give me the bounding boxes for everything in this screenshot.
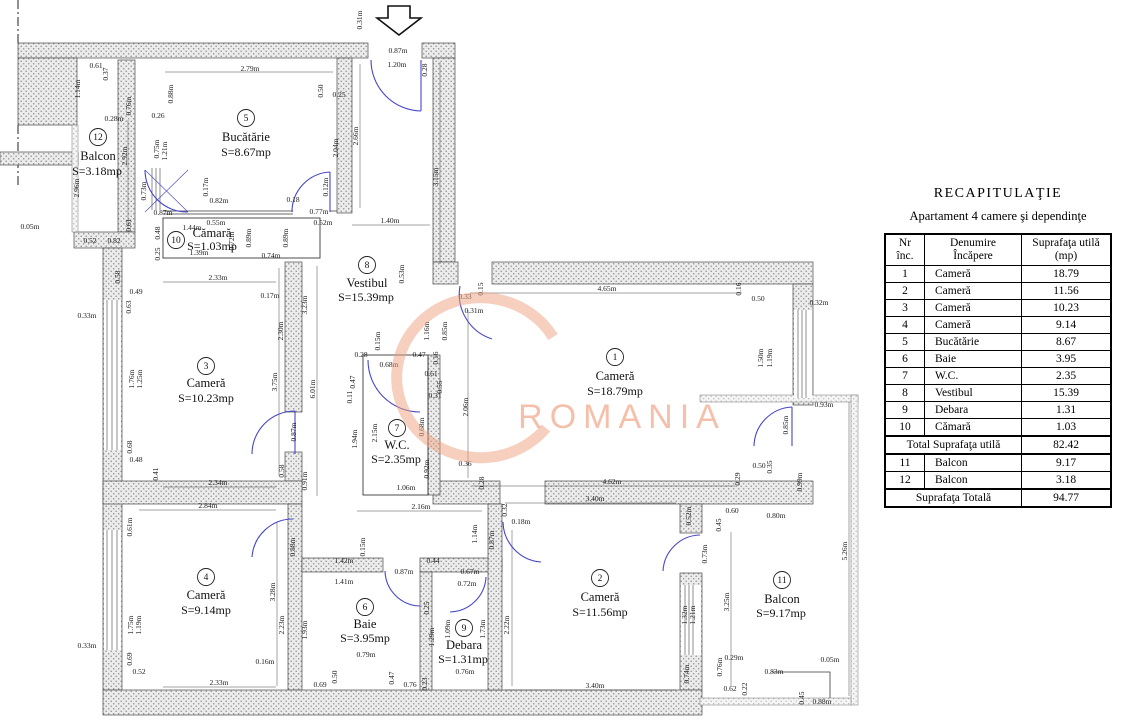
cell-room-area: 3.18: [1022, 472, 1112, 490]
dimension-label: 0.87m: [389, 46, 408, 55]
room-label-10: 10CămarăS=1.03mp: [168, 226, 237, 253]
cell-room-number: 7: [885, 368, 925, 385]
cell-room-area: 18.79: [1022, 266, 1112, 283]
dimension-label: 2.16m: [412, 502, 431, 511]
balcony-wall: [72, 125, 78, 232]
dimension-label: 0.32: [500, 503, 509, 516]
dimension-label: 1.14m: [73, 79, 82, 98]
cell-room-number: 5: [885, 334, 925, 351]
wall-segment: [422, 43, 455, 58]
table-row: 2Cameră11.56: [885, 283, 1111, 300]
dimension-label: 0.52m: [684, 506, 693, 525]
dimension-label: 0.35: [765, 460, 774, 473]
table-row: 8Vestibul15.39: [885, 385, 1111, 402]
cell-total-value: 94.77: [1022, 489, 1112, 507]
dimension-label: 0.50: [316, 84, 325, 97]
dimension-label: 0.28m: [105, 114, 124, 123]
dimension-label: 0.76m: [456, 667, 475, 676]
wall-segment: [433, 262, 458, 284]
room-number: 7: [395, 424, 400, 434]
dimension-label: 2.06m: [461, 397, 470, 416]
table-row: 5Bucătărie8.67: [885, 334, 1111, 351]
cell-room-number: 1: [885, 266, 925, 283]
cell-room-number: 6: [885, 351, 925, 368]
dimension-label: 0.50: [751, 294, 764, 303]
dimension-label: 1.93m: [300, 620, 309, 639]
cell-room-area: 8.67: [1022, 334, 1112, 351]
room-area: S=18.79mp: [587, 384, 643, 398]
dimension-label: 0.29m: [725, 653, 744, 662]
dimension-label: 1.73m: [478, 619, 487, 638]
wall-segment: [433, 481, 500, 504]
dimension-label: 0.49: [129, 287, 142, 296]
dimension-label: 0.32m: [810, 298, 829, 307]
dimension-label: 0.82m: [210, 196, 229, 205]
dimension-label: 0.15m: [373, 331, 382, 350]
header-nr: Nrînc.: [885, 234, 925, 266]
dimension-label: 0.31m: [465, 306, 484, 315]
cell-room-name: Cameră: [925, 283, 1022, 300]
dimension-label: 6.01m: [308, 379, 317, 398]
floor-plan-drawing: 0.31m0.87m1.20m0.280.610.372.79m0.88m0.5…: [0, 0, 870, 720]
dimension-label: 0.31: [428, 391, 441, 400]
door-cross-balcony12: [145, 170, 188, 212]
cell-room-number: 10: [885, 419, 925, 437]
dimension-label: 2.66m: [351, 126, 360, 145]
room-name: Baie: [354, 617, 377, 631]
room-number: 8: [365, 261, 370, 271]
dimension-label: 0.28: [354, 350, 367, 359]
dimension-label: 0.76m: [715, 657, 724, 676]
entrance-arrow-icon: [377, 6, 421, 35]
cell-room-name: W.C.: [925, 368, 1022, 385]
dimension-label: 0.47: [412, 350, 425, 359]
room-number: 9: [462, 624, 467, 634]
room-name: Balcon: [764, 592, 800, 606]
dimension-label: 0.47: [348, 375, 357, 388]
dimension-label: 0.73m: [700, 544, 709, 563]
recap-table: Nrînc. DenumireÎncăpere Suprafaţa utilă(…: [884, 233, 1112, 508]
dimension-label: 0.88m: [288, 537, 297, 556]
dimension-label: 0.31m: [355, 10, 364, 29]
dimension-label: 3.28m: [268, 582, 277, 601]
room-label-11: 11BalconS=9.17mp: [756, 572, 806, 621]
dimension-label: 3.25m: [722, 592, 731, 611]
dimension-label: 0.48: [153, 226, 162, 239]
dimension-label: 0.18: [286, 195, 299, 204]
wall-segment: [285, 262, 302, 412]
dimension-label: 1.29m: [427, 627, 436, 646]
dimension-label: 0.25: [422, 601, 431, 614]
cell-room-name: Cameră: [925, 266, 1022, 283]
cell-room-name: Vestibul: [925, 385, 1022, 402]
room-label-3: 3CamerăS=10.23mp: [178, 358, 234, 406]
dimension-label: 0.91m: [300, 471, 309, 490]
table-row: 11Balcon9.17: [885, 454, 1111, 472]
room-name: Vestibul: [347, 276, 389, 290]
dimension-label: 0.16: [431, 351, 440, 364]
door-arc-balcony11-hall: [663, 535, 700, 571]
dimension-label: 0.73m: [139, 181, 148, 200]
room-label-8: 8VestibulS=15.39mp: [338, 257, 394, 305]
table-row: Total Suprafaţa utilă82.42: [885, 436, 1111, 454]
cell-room-name: Balcon: [925, 472, 1022, 490]
dimension-label: 0.45: [797, 691, 806, 704]
dimension-label: 0.89m: [281, 228, 290, 247]
header-area: Suprafaţa utilă(mp): [1022, 234, 1112, 266]
dimension-label: 0.62: [723, 684, 736, 693]
dimension-label: 3.40m: [586, 681, 605, 690]
cell-room-name: Balcon: [925, 454, 1022, 472]
cell-total-util-value: 82.42: [1022, 436, 1112, 454]
dimension-label: 0.76m: [124, 96, 133, 115]
dimension-label: 0.52: [132, 667, 145, 676]
dimension-label: 0.80m: [767, 511, 786, 520]
dimension-label: 0.60: [725, 506, 738, 515]
cell-room-name: Baie: [925, 351, 1022, 368]
dimension-label: 2.30m: [276, 321, 285, 340]
dimension-label: 0.69: [125, 652, 134, 665]
room-area: S=10.23mp: [178, 391, 234, 405]
dimension-label: 0.26: [151, 111, 164, 120]
room-area: S=11.56mp: [572, 605, 627, 619]
room-name: W.C.: [384, 438, 409, 452]
room-number: 12: [93, 133, 103, 143]
dimension-label: 0.48: [129, 455, 142, 464]
dimension-label: 0.28: [477, 476, 486, 489]
cell-room-area: 15.39: [1022, 385, 1112, 402]
room-area: S=3.95mp: [340, 631, 390, 645]
table-row: 6Baie3.95: [885, 351, 1111, 368]
dimension-label: 1.06m: [397, 483, 416, 492]
dimension-label: 0.89m: [244, 228, 253, 247]
dimension-label: 0.50: [752, 461, 765, 470]
cell-room-number: 12: [885, 472, 925, 490]
room-area: S=2.35mp: [371, 452, 421, 466]
dimension-label: 1.50m: [756, 348, 765, 367]
dimension-label: 0.58: [113, 270, 122, 283]
dimension-label: 2.33m: [209, 273, 228, 282]
room-label-5: 5BucătărieS=8.67mp: [221, 110, 271, 160]
dimension-label: 2.79m: [241, 64, 260, 73]
dimension-label: 1.19m: [765, 348, 774, 367]
room-area: S=8.67mp: [221, 145, 271, 159]
dimension-label: 0.28: [420, 63, 429, 76]
room-number: 3: [204, 362, 209, 372]
recap-title: RECAPITULAŢIE: [884, 186, 1112, 202]
room-area: S=9.17mp: [756, 606, 806, 620]
cell-total-util-label: Total Suprafaţa utilă: [885, 436, 1022, 454]
dimension-label: 2.92m: [120, 146, 129, 165]
dimension-label: 1.19m: [134, 615, 143, 634]
dimension-label: 0.37: [101, 67, 110, 80]
dimension-label: 3.15m: [431, 167, 440, 186]
dimension-label: 0.22: [740, 682, 749, 695]
cell-room-number: 8: [885, 385, 925, 402]
dimension-label: 0.33m: [78, 311, 97, 320]
cell-room-number: 4: [885, 317, 925, 334]
door-arc-bathroom: [385, 571, 420, 606]
cell-room-area: 11.56: [1022, 283, 1112, 300]
room-area: S=15.39mp: [338, 290, 394, 304]
balcony-wall: [851, 395, 858, 705]
dimension-label: 0.87m: [154, 208, 173, 217]
room-name: Cămară: [193, 226, 232, 240]
cell-total-label: Suprafaţa Totală: [885, 489, 1022, 507]
dimension-label: 1.41m: [335, 577, 354, 586]
watermark-text: ROMANIA: [518, 398, 726, 436]
dimension-label: 2.33m: [210, 678, 229, 687]
table-row: 3Cameră10.23: [885, 300, 1111, 317]
dimension-label: 0.63: [124, 300, 133, 313]
door-arc-room4: [252, 519, 293, 557]
dimension-label: 0.61: [124, 218, 133, 231]
cell-room-area: 9.17: [1022, 454, 1112, 472]
table-row: 1Cameră18.79: [885, 266, 1111, 283]
dimension-label: 2.15m: [370, 423, 379, 442]
dimension-label: 0.23: [420, 677, 429, 690]
dimension-label: 1.09m: [443, 619, 452, 638]
dimension-label: 0.69: [313, 680, 326, 689]
dimension-label: 0.16: [734, 282, 743, 295]
window: [104, 300, 121, 450]
dimension-label: 0.44: [426, 556, 439, 565]
wall-segment: [118, 60, 135, 232]
table-row: 10Cămară1.03: [885, 419, 1111, 437]
cell-room-name: Cămară: [925, 419, 1022, 437]
cell-room-number: 9: [885, 402, 925, 419]
dimension-label: 0.25: [332, 90, 345, 99]
dimension-label: 0.53m: [397, 264, 406, 283]
room-area: S=1.31mp: [438, 652, 488, 666]
room-number: 10: [171, 236, 181, 246]
dimension-label: 0.61: [424, 369, 437, 378]
dimension-label: 3.23m: [300, 295, 309, 314]
wall-segment: [288, 504, 302, 690]
cell-room-name: Cameră: [925, 317, 1022, 334]
dimension-label: 0.52m: [314, 218, 333, 227]
room-name: Cameră: [187, 588, 226, 602]
recap-header-row: Nrînc. DenumireÎncăpere Suprafaţa utilă(…: [885, 234, 1111, 266]
dimension-label: 0.61m: [125, 517, 134, 536]
dimension-label: 1.25m: [135, 369, 144, 388]
room-label-2: 2CamerăS=11.56mp: [572, 570, 627, 620]
dimension-label: 0.41: [151, 467, 160, 480]
dimension-label: 0.11: [345, 390, 354, 403]
window: [794, 310, 812, 398]
room-name: Bucătărie: [222, 130, 270, 144]
cell-room-name: Cameră: [925, 300, 1022, 317]
wall-segment: [103, 690, 702, 715]
room-area: S=9.14mp: [181, 603, 231, 617]
dimension-label: 3.40m: [586, 494, 605, 503]
dimension-label: 0.16m: [256, 657, 275, 666]
dimension-label: 0.33m: [78, 641, 97, 650]
room-number: 11: [777, 576, 786, 586]
dimension-label: 0.85m: [781, 415, 790, 434]
dimension-label: 0.52: [83, 236, 96, 245]
door-arc-room2: [503, 522, 541, 562]
dimension-label: 2.34m: [209, 478, 228, 487]
recap-panel: RECAPITULAŢIE Apartament 4 camere şi dep…: [884, 186, 1112, 508]
dimension-label: 0.87m: [395, 567, 414, 576]
dimension-label: 0.67m: [461, 567, 480, 576]
room-label-12: 12BalconS=3.18mp: [72, 129, 122, 179]
dimension-label: 0.88m: [813, 697, 832, 706]
cell-room-area: 9.14: [1022, 317, 1112, 334]
room-area: S=3.18mp: [72, 164, 122, 178]
dimension-label: 0.79m: [357, 650, 376, 659]
room-number: 4: [204, 573, 209, 583]
table-row: 4Cameră9.14: [885, 317, 1111, 334]
cell-room-number: 2: [885, 283, 925, 300]
dimension-label: 4.62m: [603, 477, 622, 486]
room-name: Cameră: [187, 376, 226, 390]
wall-segment: [433, 58, 455, 262]
wall-segment: [492, 262, 813, 284]
room-number: 5: [244, 114, 249, 124]
dimension-label: 1.21m: [160, 141, 169, 160]
dimension-label: 2.22m: [502, 615, 511, 634]
dimension-label: 0.82: [107, 236, 120, 245]
table-row: Suprafaţa Totală94.77: [885, 489, 1111, 507]
room-label-6: 6BaieS=3.95mp: [340, 599, 390, 646]
dimension-label: 2.04m: [331, 138, 340, 157]
dimension-label: 0.18m: [512, 517, 531, 526]
room-name: Debara: [446, 638, 483, 652]
dimension-label: 4.65m: [598, 284, 617, 293]
dimension-label: 0.77m: [310, 207, 329, 216]
dimension-label: 3.75m: [270, 372, 279, 391]
dimension-label: 0.50: [330, 670, 339, 683]
room-name: Cameră: [581, 590, 620, 604]
room-name: Cameră: [596, 369, 635, 383]
dimension-label: 0.68: [125, 440, 134, 453]
dimension-label: 5.26m: [840, 541, 849, 560]
dimension-label: 1.21m: [688, 605, 697, 624]
dimension-label: 1.42m: [335, 556, 354, 565]
dimension-label: 0.25: [153, 247, 162, 260]
dimension-label: 0.88m: [166, 84, 175, 103]
dimension-label: 0.17m: [201, 177, 210, 196]
room-name: Balcon: [80, 149, 116, 163]
dimension-label: 0.12m: [321, 177, 330, 196]
cell-room-area: 3.95: [1022, 351, 1112, 368]
dimension-label: 1.40m: [381, 216, 400, 225]
dimension-label: 2.96m: [72, 178, 81, 197]
dimension-label: 0.05m: [21, 222, 40, 231]
room-number: 6: [363, 603, 368, 613]
dimension-label: 0.05m: [821, 655, 840, 664]
dimension-label: 0.47: [387, 671, 396, 684]
room-area: S=1.03mp: [187, 239, 237, 253]
dimension-label: 0.17m: [261, 291, 280, 300]
dimension-label: 0.85m: [440, 321, 449, 340]
cell-room-number: 3: [885, 300, 925, 317]
dimension-label: 1.14m: [470, 524, 479, 543]
floor-plan-page: 0.31m0.87m1.20m0.280.610.372.79m0.88m0.5…: [0, 0, 1129, 720]
room-number: 2: [598, 574, 603, 584]
dimension-label: 0.74m: [682, 664, 691, 683]
dimension-label: 0.29: [733, 472, 742, 485]
dimension-label: 0.72m: [458, 579, 477, 588]
window: [104, 530, 121, 650]
wall-segment: [337, 58, 352, 213]
wall-segment: [18, 43, 368, 58]
dimension-label: 0.15m: [358, 537, 367, 556]
dimension-label: 1.20m: [388, 60, 407, 69]
dimension-label: 2.84m: [199, 501, 218, 510]
dimension-label: 0.99m: [795, 472, 804, 491]
dimension-label: 0.74m: [262, 251, 281, 260]
dimension-label: 0.87m: [487, 530, 496, 549]
dimension-label: 0.83m: [765, 667, 784, 676]
table-row: 12Balcon3.18: [885, 472, 1111, 490]
wall-segment: [18, 58, 77, 125]
dimension-label: 0.58: [277, 464, 286, 477]
cell-room-area: 1.03: [1022, 419, 1112, 437]
cell-room-number: 11: [885, 454, 925, 472]
cell-room-name: Debara: [925, 402, 1022, 419]
header-name: DenumireÎncăpere: [925, 234, 1022, 266]
dimension-label: 0.45: [714, 518, 723, 531]
dimension-label: 0.87m: [289, 422, 298, 441]
room-label-1: 1CamerăS=18.79mp: [587, 349, 643, 399]
cell-room-area: 2.35: [1022, 368, 1112, 385]
dimension-label: 1.94m: [350, 429, 359, 448]
dimension-label: 0.92m: [422, 459, 431, 478]
wall-segment: [0, 152, 78, 165]
dimension-label: 0.93m: [815, 400, 834, 409]
dimension-label: 2.23m: [277, 615, 286, 634]
room-label-4: 4CamerăS=9.14mp: [181, 569, 231, 618]
cell-room-area: 1.31: [1022, 402, 1112, 419]
cell-room-name: Bucătărie: [925, 334, 1022, 351]
cell-room-area: 10.23: [1022, 300, 1112, 317]
recap-subtitle: Apartament 4 camere şi dependinţe: [884, 209, 1112, 224]
dimension-label: 0.76: [403, 680, 416, 689]
table-row: 7W.C.2.35: [885, 368, 1111, 385]
room-number: 1: [613, 353, 618, 363]
table-row: 9Debara1.31: [885, 402, 1111, 419]
